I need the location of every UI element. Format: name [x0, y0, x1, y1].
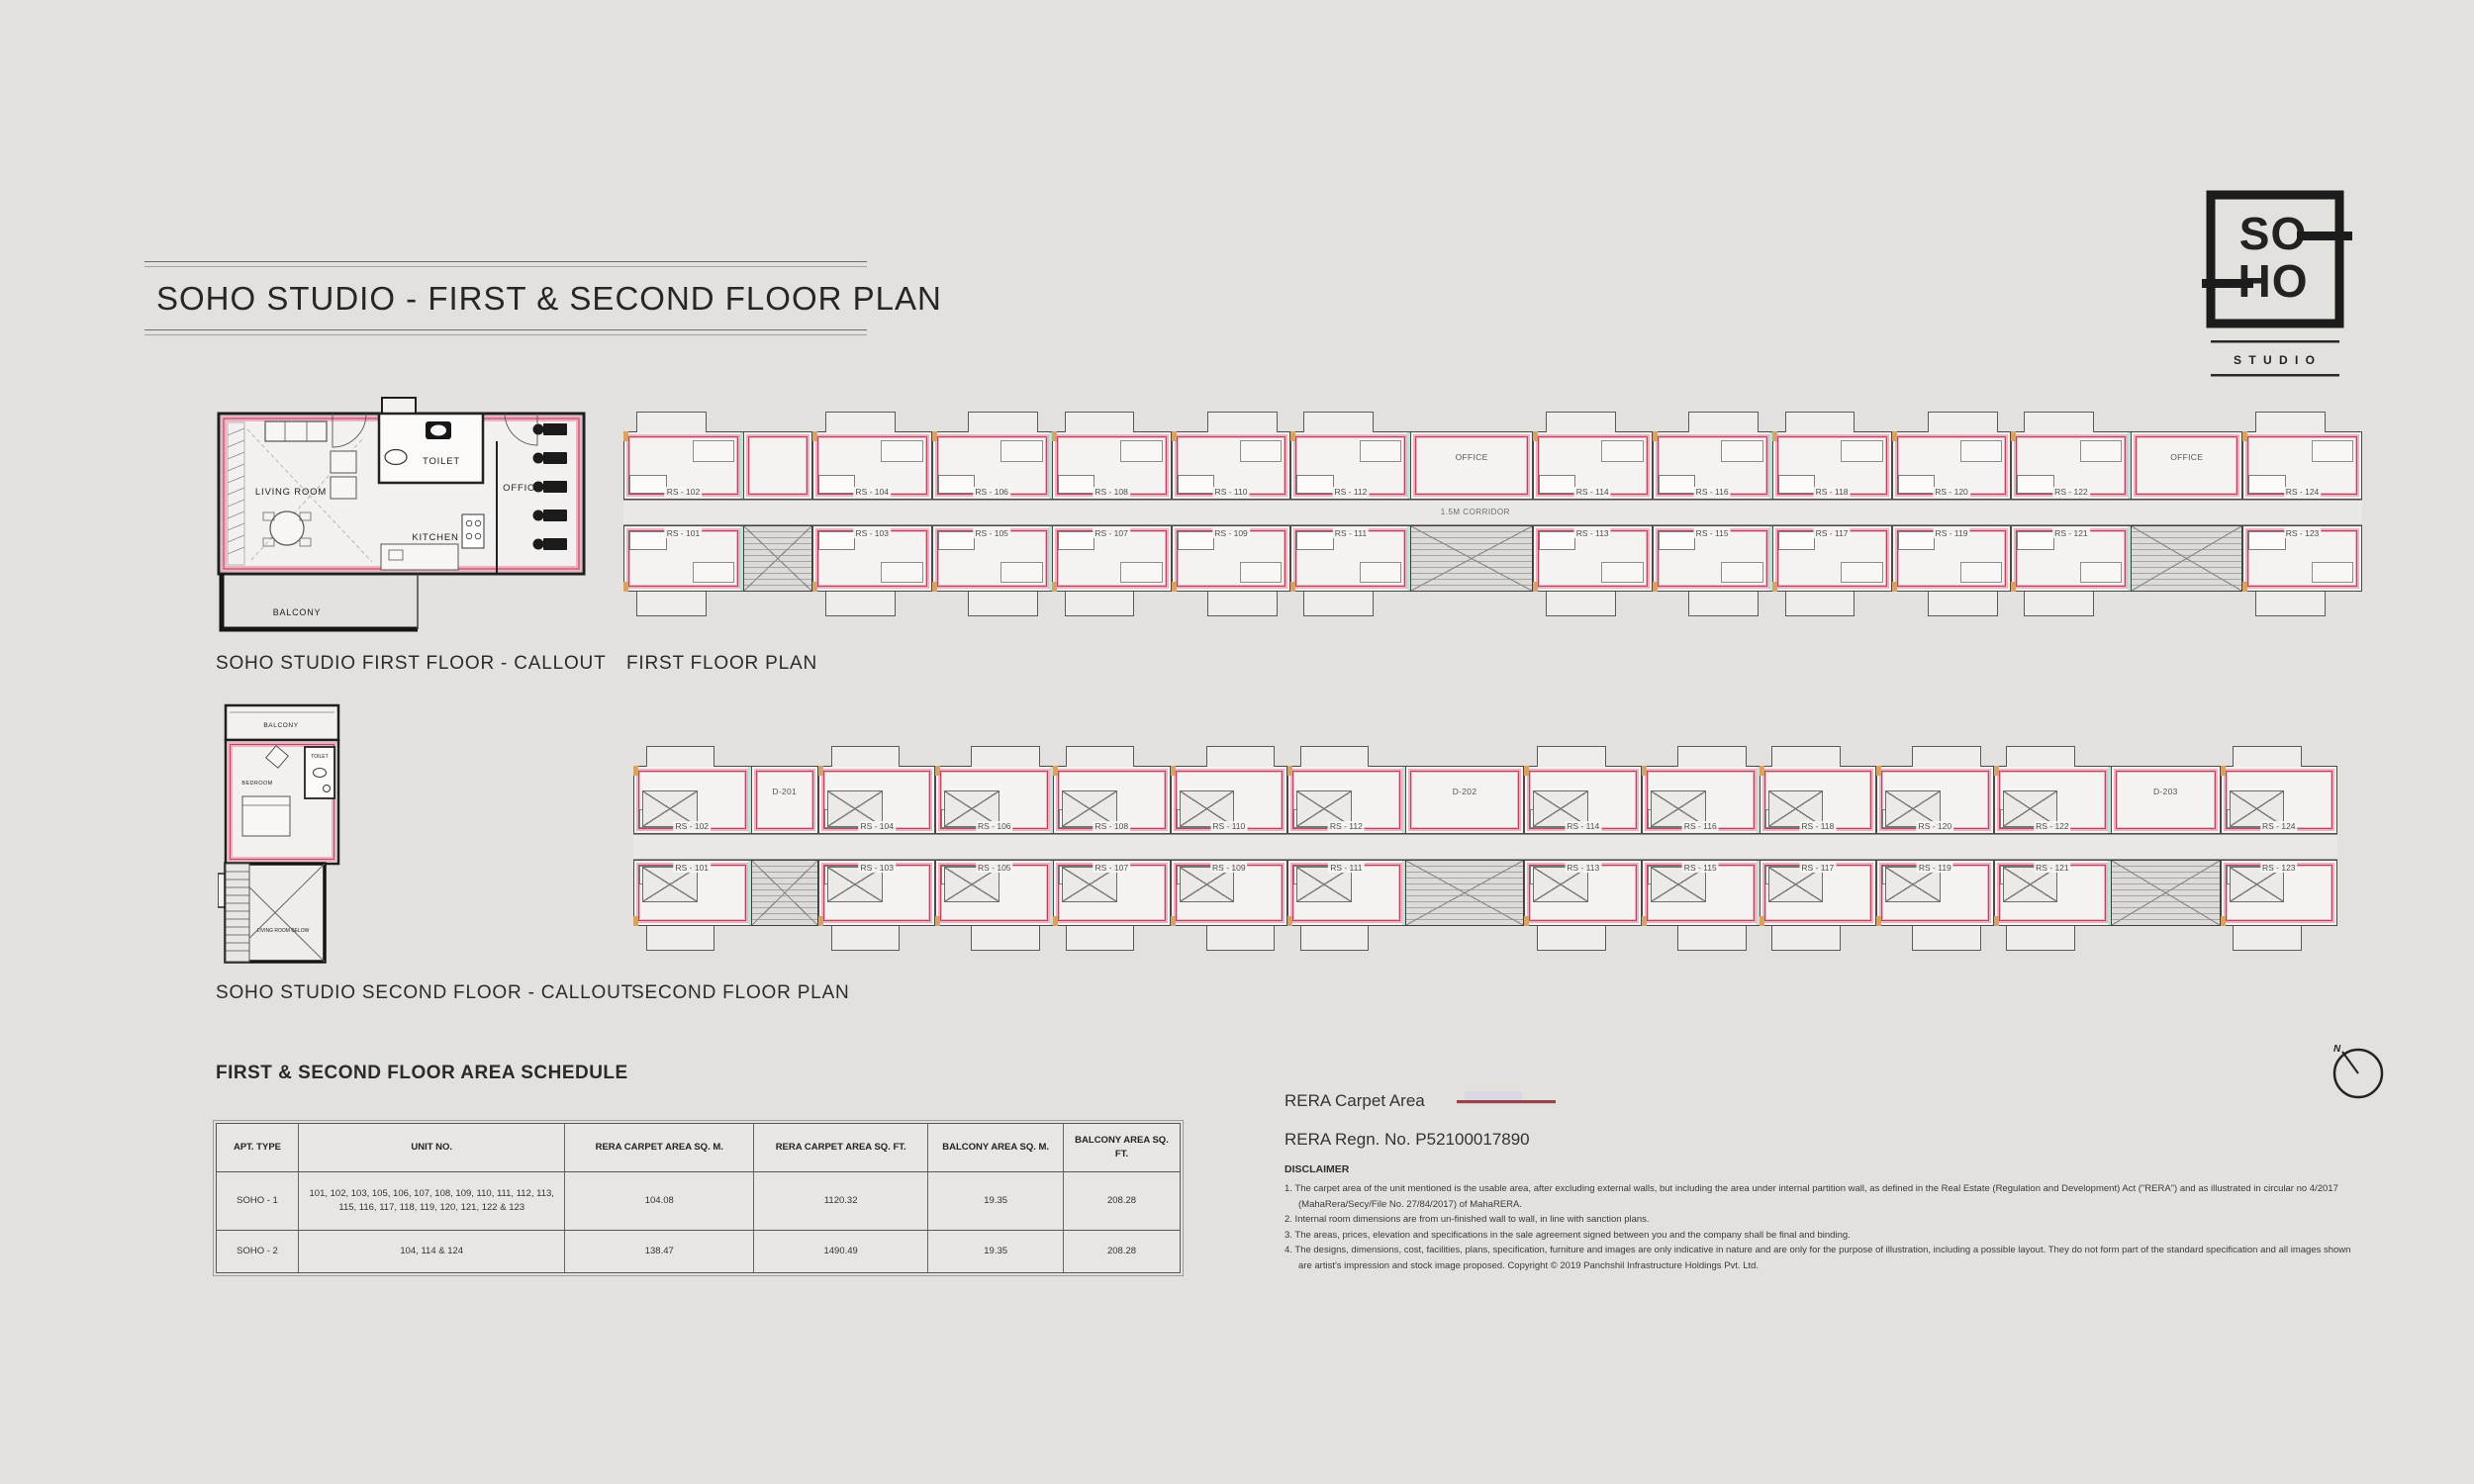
- unit-rs-113: RS - 113: [1524, 860, 1642, 926]
- balcony: [2024, 412, 2094, 432]
- desk-chair: [533, 539, 544, 550]
- balcony: [968, 592, 1038, 616]
- party-wall-accent: [1769, 432, 1772, 499]
- room-d-203: D-203: [2111, 766, 2220, 834]
- bathroom: [1659, 531, 1696, 550]
- unit-label: RS - 123: [2284, 528, 2322, 538]
- room-furniture: [1000, 440, 1042, 462]
- unit-rs-104: RS - 104: [818, 766, 936, 834]
- unit-label: RS - 101: [673, 863, 711, 873]
- unit-rs-114: RS - 114: [1533, 431, 1653, 500]
- bathroom: [1539, 475, 1576, 494]
- room-d-201: D-201: [751, 766, 818, 834]
- stair-lift-core: [751, 860, 818, 926]
- balcony: [1688, 412, 1759, 432]
- unit-label: RS - 103: [858, 863, 896, 873]
- rera-registration-number: RERA Regn. No. P52100017890: [1285, 1130, 1530, 1150]
- unit-label: RS - 122: [2034, 821, 2071, 831]
- unit-label: RS - 121: [2052, 528, 2090, 538]
- column-marker: [623, 431, 628, 441]
- title-rule-top: [144, 261, 867, 267]
- wc-bowl-icon: [430, 425, 446, 436]
- logo-divider-bottom: [2211, 374, 2339, 377]
- table-row-soho1: SOHO - 1 101, 102, 103, 105, 106, 107, 1…: [217, 1171, 1180, 1230]
- col-balcony-sqft: BALCONY AREA SQ. FT.: [1064, 1124, 1180, 1171]
- room-furniture: [693, 562, 734, 584]
- bathroom: [938, 531, 976, 550]
- desk: [543, 481, 567, 493]
- balcony: [1207, 412, 1278, 432]
- stair-lift-core: [2111, 860, 2220, 926]
- column-marker: [1290, 431, 1295, 441]
- unit-label: RS - 108: [1094, 821, 1131, 831]
- column-marker: [1287, 766, 1292, 776]
- party-wall-accent: [1757, 767, 1760, 833]
- table-header-row: APT. TYPE UNIT NO. RERA CARPET AREA SQ. …: [217, 1124, 1180, 1171]
- unit-label: RS - 109: [1212, 528, 1250, 538]
- unit-rs-105: RS - 105: [932, 525, 1052, 592]
- desk: [543, 423, 567, 435]
- legend-line-icon: [1457, 1100, 1556, 1103]
- unit-label: RS - 120: [1933, 487, 1970, 497]
- room-furniture: [1601, 562, 1643, 584]
- bathroom: [629, 475, 667, 494]
- column-marker: [932, 431, 937, 441]
- unit-rs-110: RS - 110: [1172, 431, 1291, 500]
- unit-label: RS - 112: [1328, 821, 1365, 831]
- disclaimer-heading: DISCLAIMER: [1285, 1163, 2358, 1175]
- column-marker: [1052, 431, 1057, 441]
- unit-label: RS - 116: [1682, 821, 1719, 831]
- unit-label: RS - 102: [665, 487, 703, 497]
- unit-rs-102: RS - 102: [623, 431, 743, 500]
- room-office: OFFICE: [2131, 431, 2242, 500]
- balcony: [2006, 746, 2075, 767]
- rera-carpet-label: RERA Carpet Area: [1285, 1091, 1425, 1111]
- room-furniture: [881, 562, 922, 584]
- first-plan-caption: FIRST FLOOR PLAN: [626, 653, 817, 675]
- balcony: [1928, 592, 1998, 616]
- party-wall-accent: [2128, 432, 2131, 499]
- top-unit-row: RS - 102RS - 104RS - 106RS - 108RS - 110…: [623, 431, 2362, 500]
- carpet-sqft: 1120.32: [754, 1172, 928, 1230]
- bathroom: [1778, 475, 1816, 494]
- unit-label: RS - 106: [973, 487, 1010, 497]
- col-balcony-sqm: BALCONY AREA SQ. M.: [928, 1124, 1064, 1171]
- bathroom: [1539, 531, 1576, 550]
- room-furniture: [1601, 440, 1643, 462]
- disclaimer-item: 1. The carpet area of the unit mentioned…: [1285, 1181, 2358, 1212]
- corridor: 1.5M CORRIDOR: [623, 500, 2362, 525]
- column-marker: [818, 916, 823, 926]
- column-marker: [1533, 582, 1538, 592]
- room-furniture: [2312, 562, 2353, 584]
- unit-label: RS - 104: [858, 821, 896, 831]
- unit-label: RS - 114: [1565, 821, 1601, 831]
- balcony: [831, 746, 901, 767]
- column-marker: [1892, 582, 1897, 592]
- stair: [226, 864, 249, 962]
- desk: [543, 538, 567, 550]
- unit-rs-118: RS - 118: [1772, 431, 1892, 500]
- logo-studio-label: S T U D I O: [2234, 353, 2317, 367]
- balcony: [1537, 746, 1606, 767]
- unit-rs-103: RS - 103: [812, 525, 932, 592]
- bottom-unit-row: RS - 101RS - 103RS - 105RS - 107RS - 109…: [623, 525, 2362, 592]
- room-furniture: [1841, 562, 1882, 584]
- balcony: [1771, 926, 1841, 951]
- compass-needle: [2342, 1052, 2358, 1073]
- unit-rs-109: RS - 109: [1172, 525, 1291, 592]
- column-marker: [623, 582, 628, 592]
- unit-rs-124: RS - 124: [2221, 766, 2338, 834]
- disclaimer-item: 4. The designs, dimensions, cost, facili…: [1285, 1243, 2358, 1273]
- unit-no: 101, 102, 103, 105, 106, 107, 108, 109, …: [299, 1172, 566, 1230]
- balcony: [831, 926, 901, 951]
- toilet-label: TOILET: [311, 754, 328, 760]
- party-wall-accent: [748, 861, 751, 925]
- column-marker: [1053, 766, 1058, 776]
- unit-rs-117: RS - 117: [1760, 860, 1877, 926]
- table-row-soho2: SOHO - 2 104, 114 & 124 138.47 1490.49 1…: [217, 1230, 1180, 1272]
- unit-label: RS - 110: [1213, 487, 1250, 497]
- balcony: [825, 412, 896, 432]
- column-marker: [2011, 582, 2016, 592]
- party-wall-accent: [1049, 432, 1052, 499]
- column-marker: [1052, 582, 1057, 592]
- unit-label: RS - 111: [1328, 863, 1364, 873]
- unit-label: RS - 124: [2284, 487, 2322, 497]
- column-marker: [1642, 916, 1647, 926]
- rera-carpet-outline: [1408, 769, 1522, 831]
- balcony: [1065, 592, 1135, 616]
- unit-label: RS - 105: [973, 528, 1010, 538]
- first-floor-plan-strip: RS - 102RS - 104RS - 106RS - 108RS - 110…: [623, 410, 2362, 619]
- unit-rs-107: RS - 107: [1052, 525, 1172, 592]
- balcony: [636, 592, 707, 616]
- column-marker: [1772, 582, 1777, 592]
- column-marker: [1876, 916, 1881, 926]
- unit-rs-105: RS - 105: [935, 860, 1053, 926]
- column-marker: [2242, 582, 2247, 592]
- rera-carpet-legend: RERA Carpet Area: [1285, 1091, 1556, 1111]
- unit-label: RS - 108: [1093, 487, 1130, 497]
- living-room-label: LIVING ROOM: [255, 487, 327, 498]
- unit-rs-113: RS - 113: [1533, 525, 1653, 592]
- column-marker: [1892, 431, 1897, 441]
- unit-label: RS - 120: [1917, 821, 1954, 831]
- unit-label: RS - 121: [2034, 863, 2071, 873]
- room-furniture: [1240, 562, 1282, 584]
- balcony: [2233, 926, 2302, 951]
- balcony-sqm: 19.35: [928, 1231, 1064, 1272]
- room-furniture: [2080, 440, 2122, 462]
- unit-label: RS - 101: [665, 528, 703, 538]
- room-furniture: [1120, 562, 1162, 584]
- sheet: SOHO STUDIO - FIRST & SECOND FLOOR PLAN …: [0, 0, 2474, 1484]
- unit-label: RS - 111: [1333, 528, 1369, 538]
- room-furniture: [1721, 440, 1762, 462]
- unit-label: RS - 110: [1210, 821, 1247, 831]
- column-marker: [1994, 916, 1999, 926]
- column-marker: [1290, 582, 1295, 592]
- unit-rs-115: RS - 115: [1653, 525, 1772, 592]
- bathroom: [2017, 475, 2054, 494]
- party-wall-accent: [740, 526, 743, 591]
- balcony: [1771, 746, 1841, 767]
- rera-carpet-outline: [1413, 434, 1529, 497]
- column-marker: [1760, 916, 1764, 926]
- unit-label: RS - 104: [853, 487, 891, 497]
- sink-icon: [385, 450, 407, 465]
- unit-rs-114: RS - 114: [1524, 766, 1642, 834]
- column-marker: [1876, 766, 1881, 776]
- sink-icon: [324, 786, 331, 792]
- unit-rs-122: RS - 122: [2011, 431, 2131, 500]
- column-marker: [633, 916, 638, 926]
- carpet-sqm: 104.08: [565, 1172, 754, 1230]
- balcony-sqft: 208.28: [1064, 1231, 1180, 1272]
- room-furniture: [2312, 440, 2353, 462]
- column-marker: [1653, 582, 1658, 592]
- unit-label: RS - 105: [976, 863, 1013, 873]
- unit-label: RS - 112: [1332, 487, 1369, 497]
- stove: [462, 514, 484, 548]
- room-d-202: D-202: [1405, 766, 1525, 834]
- carpet-sqft: 1490.49: [754, 1231, 928, 1272]
- soho-logo: SO HO S T U D I O: [2202, 190, 2352, 388]
- room-furniture: [1240, 440, 1282, 462]
- first-callout-caption: SOHO STUDIO FIRST FLOOR - CALLOUT: [216, 653, 606, 675]
- unit-label: RS - 106: [976, 821, 1013, 831]
- disclaimer: DISCLAIMER 1. The carpet area of the uni…: [1285, 1163, 2358, 1273]
- rera-carpet-outline: [2134, 434, 2239, 497]
- bathroom: [1898, 531, 1936, 550]
- column-marker: [2221, 916, 2226, 926]
- balcony: [2255, 592, 2326, 616]
- unit-rs-104: RS - 104: [812, 431, 932, 500]
- toilet-label: TOILET: [423, 456, 460, 467]
- unit-label: RS - 114: [1574, 487, 1611, 497]
- unit-rs-103: RS - 103: [818, 860, 936, 926]
- stair-lift-core: [1410, 525, 1532, 592]
- balcony: [1303, 592, 1374, 616]
- balcony-label: BALCONY: [273, 607, 322, 617]
- unit-rs-109: RS - 109: [1171, 860, 1288, 926]
- bathroom: [2017, 531, 2054, 550]
- bathroom: [1659, 475, 1696, 494]
- unit-label: RS - 124: [2260, 821, 2298, 831]
- logo-bar-left: [2202, 279, 2253, 288]
- unit-rs-116: RS - 116: [1653, 431, 1772, 500]
- balcony: [1065, 412, 1135, 432]
- balcony: [1688, 592, 1759, 616]
- sofa: [265, 421, 327, 441]
- apt-type: SOHO - 2: [217, 1231, 299, 1272]
- column-marker: [1524, 916, 1529, 926]
- living-room-below-label: LIVING ROOM BELOW: [257, 928, 310, 934]
- desk: [543, 452, 567, 464]
- room-furniture: [1000, 562, 1042, 584]
- unit-rs-121: RS - 121: [1994, 860, 2112, 926]
- schedule-title: FIRST & SECOND FLOOR AREA SCHEDULE: [216, 1063, 628, 1084]
- column-marker: [935, 916, 940, 926]
- room-label: OFFICE: [2170, 452, 2203, 462]
- balcony: [636, 412, 707, 432]
- balcony: [1677, 746, 1747, 767]
- room-label: OFFICE: [1456, 452, 1488, 462]
- balcony: [971, 746, 1040, 767]
- bathroom: [629, 531, 667, 550]
- bathroom: [1058, 531, 1095, 550]
- unit-rs-124: RS - 124: [2242, 431, 2362, 500]
- col-carpet-sqft: RERA CARPET AREA SQ. FT.: [754, 1124, 928, 1171]
- corridor-label: 1.5M CORRIDOR: [1441, 508, 1510, 516]
- unit-label: RS - 119: [1917, 863, 1953, 873]
- col-carpet-sqm: RERA CARPET AREA SQ. M.: [565, 1124, 754, 1171]
- unit-label: RS - 103: [853, 528, 891, 538]
- unit-rs-120: RS - 120: [1892, 431, 2012, 500]
- unit-rs-120: RS - 120: [1876, 766, 1994, 834]
- unit-label: RS - 113: [1574, 528, 1611, 538]
- unit-rs-102: RS - 102: [633, 766, 751, 834]
- unit-rs-101: RS - 101: [633, 860, 751, 926]
- column-marker: [812, 431, 817, 441]
- bathroom: [1296, 475, 1334, 494]
- kitchen-counter: [381, 544, 458, 570]
- unit-rs-101: RS - 101: [623, 525, 743, 592]
- party-wall-accent: [1407, 432, 1410, 499]
- room-furniture: [1960, 562, 2002, 584]
- unit-no: 104, 114 & 124: [299, 1231, 566, 1272]
- room-furniture: [1120, 440, 1162, 462]
- unit-rs-107: RS - 107: [1053, 860, 1171, 926]
- kitchen-label: KITCHEN: [412, 532, 458, 543]
- unit-rs-121: RS - 121: [2011, 525, 2131, 592]
- desk-chair: [533, 510, 544, 521]
- dining-table: [270, 511, 304, 545]
- office-label: OFFICE: [503, 483, 542, 494]
- balcony: [1537, 926, 1606, 951]
- bathroom: [2248, 531, 2286, 550]
- unit-label: RS - 109: [1210, 863, 1248, 873]
- page-title: SOHO STUDIO - FIRST & SECOND FLOOR PLAN: [156, 280, 867, 318]
- carpet-sqm: 138.47: [565, 1231, 754, 1272]
- balcony: [1066, 746, 1135, 767]
- balcony: [968, 412, 1038, 432]
- unit-label: RS - 123: [2260, 863, 2298, 873]
- unit-label: RS - 115: [1694, 528, 1731, 538]
- unit-label: RS - 113: [1565, 863, 1601, 873]
- unit-label: RS - 119: [1934, 528, 1970, 538]
- room-furniture: [881, 440, 922, 462]
- balcony: [2024, 592, 2094, 616]
- balcony: [1546, 412, 1616, 432]
- balcony: [1300, 746, 1370, 767]
- room-furniture: [1360, 562, 1401, 584]
- balcony: [2255, 412, 2326, 432]
- balcony: [825, 592, 896, 616]
- unit-rs-118: RS - 118: [1760, 766, 1877, 834]
- party-wall-accent: [1050, 767, 1053, 833]
- wc-icon: [314, 769, 327, 778]
- balcony: [1300, 926, 1370, 951]
- balcony: [1206, 926, 1276, 951]
- unit-label: RS - 117: [1814, 528, 1851, 538]
- unit-rs-108: RS - 108: [1053, 766, 1171, 834]
- column-marker: [2242, 431, 2247, 441]
- balcony: [1303, 412, 1374, 432]
- balcony: [1912, 926, 1981, 951]
- col-apt-type: APT. TYPE: [217, 1124, 299, 1171]
- balcony: [646, 746, 715, 767]
- bedroom-label: BEDROOM: [241, 781, 272, 787]
- title-block: SOHO STUDIO - FIRST & SECOND FLOOR PLAN: [144, 261, 867, 335]
- balcony-sqft: 208.28: [1064, 1172, 1180, 1230]
- column-marker: [932, 582, 937, 592]
- balcony: [1785, 592, 1855, 616]
- bed: [242, 796, 290, 836]
- balcony-label: BALCONY: [263, 722, 298, 729]
- column-marker: [1172, 431, 1177, 441]
- column-marker: [1772, 431, 1777, 441]
- balcony: [1546, 592, 1616, 616]
- first-floor-callout-plan: TOILET LIVING ROOM OFFICE KITCHEN BALCON…: [216, 396, 590, 637]
- unit-label: RS - 118: [1814, 487, 1851, 497]
- room-furniture: [2080, 562, 2122, 584]
- second-floor-callout-plan: BALCONY TOILET BEDROOM LIVING ROOM BELOW: [218, 697, 368, 970]
- desk: [543, 510, 567, 521]
- stair-lift-core: [1405, 860, 1525, 926]
- compass-north-label: N: [2333, 1044, 2341, 1055]
- unit-rs-116: RS - 116: [1642, 766, 1760, 834]
- second-floor-plan-strip: RS - 102D-201RS - 104RS - 106RS - 108RS …: [633, 744, 2337, 954]
- bathroom: [1296, 531, 1334, 550]
- second-callout-caption: SOHO STUDIO SECOND FLOOR - CALLOUT: [216, 982, 633, 1004]
- unit-rs-123: RS - 123: [2242, 525, 2362, 592]
- unit-rs-119: RS - 119: [1892, 525, 2012, 592]
- party-wall-accent: [1402, 861, 1405, 925]
- apt-type: SOHO - 1: [217, 1172, 299, 1230]
- room-office: OFFICE: [1410, 431, 1532, 500]
- bathroom: [1898, 475, 1936, 494]
- party-wall-accent: [740, 432, 743, 499]
- column-marker: [1642, 766, 1647, 776]
- unit-label: RS - 102: [673, 821, 711, 831]
- logo-so: SO: [2239, 208, 2307, 259]
- unit-rs-115: RS - 115: [1642, 860, 1760, 926]
- disclaimer-item: 3. The areas, prices, elevation and spec…: [1285, 1228, 2358, 1244]
- unit-label: RS - 122: [2052, 487, 2090, 497]
- column-marker: [1533, 431, 1538, 441]
- column-marker: [1172, 582, 1177, 592]
- bathroom: [818, 475, 856, 494]
- armchair-1: [331, 451, 356, 473]
- column-marker: [1653, 431, 1658, 441]
- balcony-sqm: 19.35: [928, 1172, 1064, 1230]
- bathroom: [818, 531, 856, 550]
- unit-rs-119: RS - 119: [1876, 860, 1994, 926]
- col-unit-no: UNIT NO.: [299, 1124, 566, 1171]
- balcony: [2006, 926, 2075, 951]
- bathroom: [1058, 475, 1095, 494]
- rera-carpet-outline: [2114, 769, 2217, 831]
- room-label: D-201: [772, 787, 797, 796]
- column-marker: [818, 766, 823, 776]
- callout1-entry-lobby: [382, 398, 416, 414]
- logo-bar-right: [2297, 232, 2352, 240]
- second-plan-caption: SECOND FLOOR PLAN: [631, 982, 850, 1004]
